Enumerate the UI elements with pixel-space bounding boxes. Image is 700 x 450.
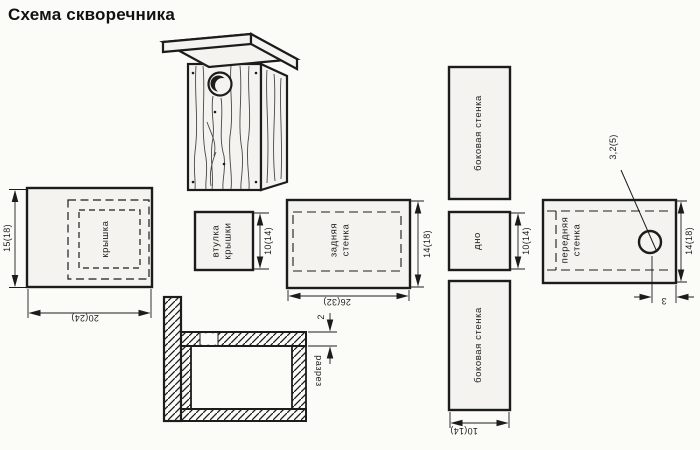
lid-bushing-size-dim: 10(14) (263, 227, 273, 255)
bottom-piece (449, 212, 525, 270)
back-wall-piece (287, 200, 424, 301)
side-wall-top-label: боковая стенка (473, 95, 485, 171)
birdhouse-schematic: Схема скворечника крышка втулка крышки з… (0, 0, 700, 450)
page-title: Схема скворечника (8, 5, 175, 25)
board-thickness-dim: 2 (316, 314, 326, 319)
section-label: разрез (312, 355, 324, 387)
side-wall-bottom-label: боковая стенка (473, 307, 485, 383)
lid-height-dim: 15(18) (2, 224, 12, 252)
entrance-hole-3d (209, 73, 232, 96)
front-wall-height-dim: 14(18) (684, 227, 694, 255)
section-view (164, 297, 337, 421)
lid-width-dim: 20(24) (71, 313, 99, 323)
lid-piece (9, 188, 152, 318)
birdhouse-3d-view (163, 34, 297, 190)
bottom-label: дно (472, 232, 484, 250)
front-wall-label: передняя стенка (560, 217, 585, 264)
back-wall-height-dim: 14(18) (422, 230, 432, 258)
back-wall-width-dim: 26(32) (323, 297, 351, 307)
back-wall-label: задняя стенка (329, 223, 354, 257)
lid-bushing-label: втулка крышки (211, 223, 236, 260)
side-wall-bottom-width-dim: 10(14) (450, 426, 478, 436)
hole-diameter-dim: 3,2(5) (608, 134, 618, 159)
lid-label: крышка (100, 220, 112, 257)
roof-3d (163, 34, 297, 69)
hole-offset-dim: 3 (661, 296, 666, 306)
bottom-size-dim: 10(14) (521, 227, 531, 255)
